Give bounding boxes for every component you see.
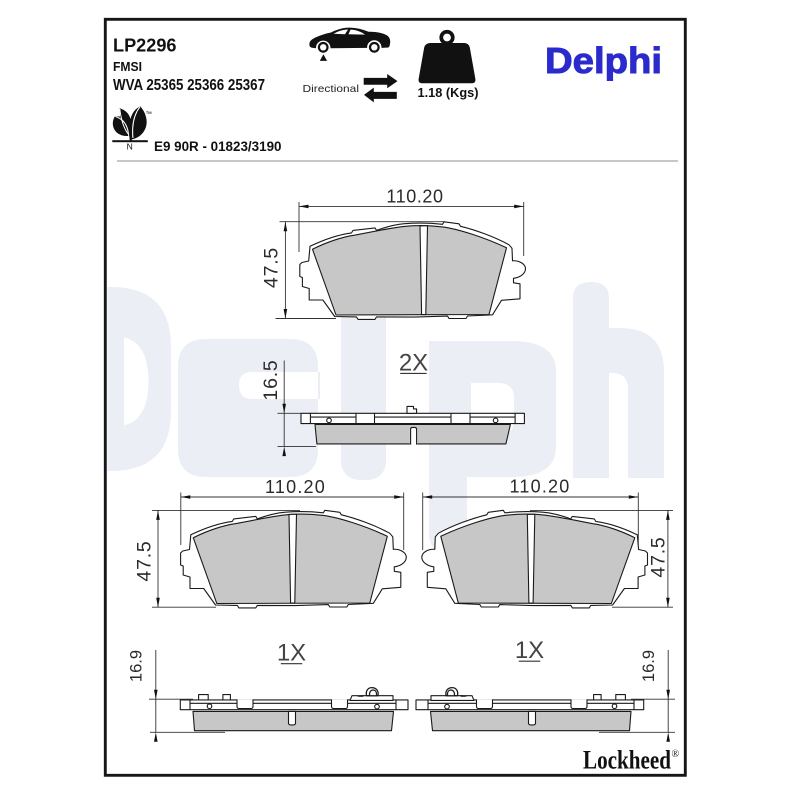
svg-text:16.5: 16.5 — [260, 359, 282, 400]
svg-text:E9 90R - 01823/3190: E9 90R - 01823/3190 — [154, 139, 282, 154]
svg-text:Delphi: Delphi — [545, 40, 662, 81]
svg-text:2X: 2X — [399, 349, 428, 376]
svg-text:47.5: 47.5 — [647, 536, 669, 577]
svg-text:110.20: 110.20 — [386, 187, 443, 207]
svg-text:WVA 25365 25366 25367: WVA 25365 25366 25367 — [113, 77, 265, 94]
svg-text:1X: 1X — [515, 637, 544, 664]
svg-text:Lockheed: Lockheed — [583, 745, 671, 775]
svg-text:1.18 (Kgs): 1.18 (Kgs) — [418, 86, 479, 100]
svg-text:110.20: 110.20 — [265, 477, 326, 497]
svg-text:110.20: 110.20 — [510, 477, 571, 497]
svg-text:1X: 1X — [277, 640, 306, 667]
svg-text:16.9: 16.9 — [640, 650, 658, 682]
svg-text:®: ® — [672, 749, 680, 760]
svg-text:47.5: 47.5 — [134, 540, 156, 581]
svg-text:16.9: 16.9 — [128, 650, 146, 682]
svg-text:FMSI: FMSI — [113, 60, 142, 74]
svg-text:Directional: Directional — [303, 83, 360, 95]
svg-text:N: N — [127, 141, 133, 151]
svg-text:™: ™ — [146, 111, 153, 118]
svg-text:47.5: 47.5 — [260, 247, 282, 288]
svg-text:LP2296: LP2296 — [113, 36, 177, 56]
